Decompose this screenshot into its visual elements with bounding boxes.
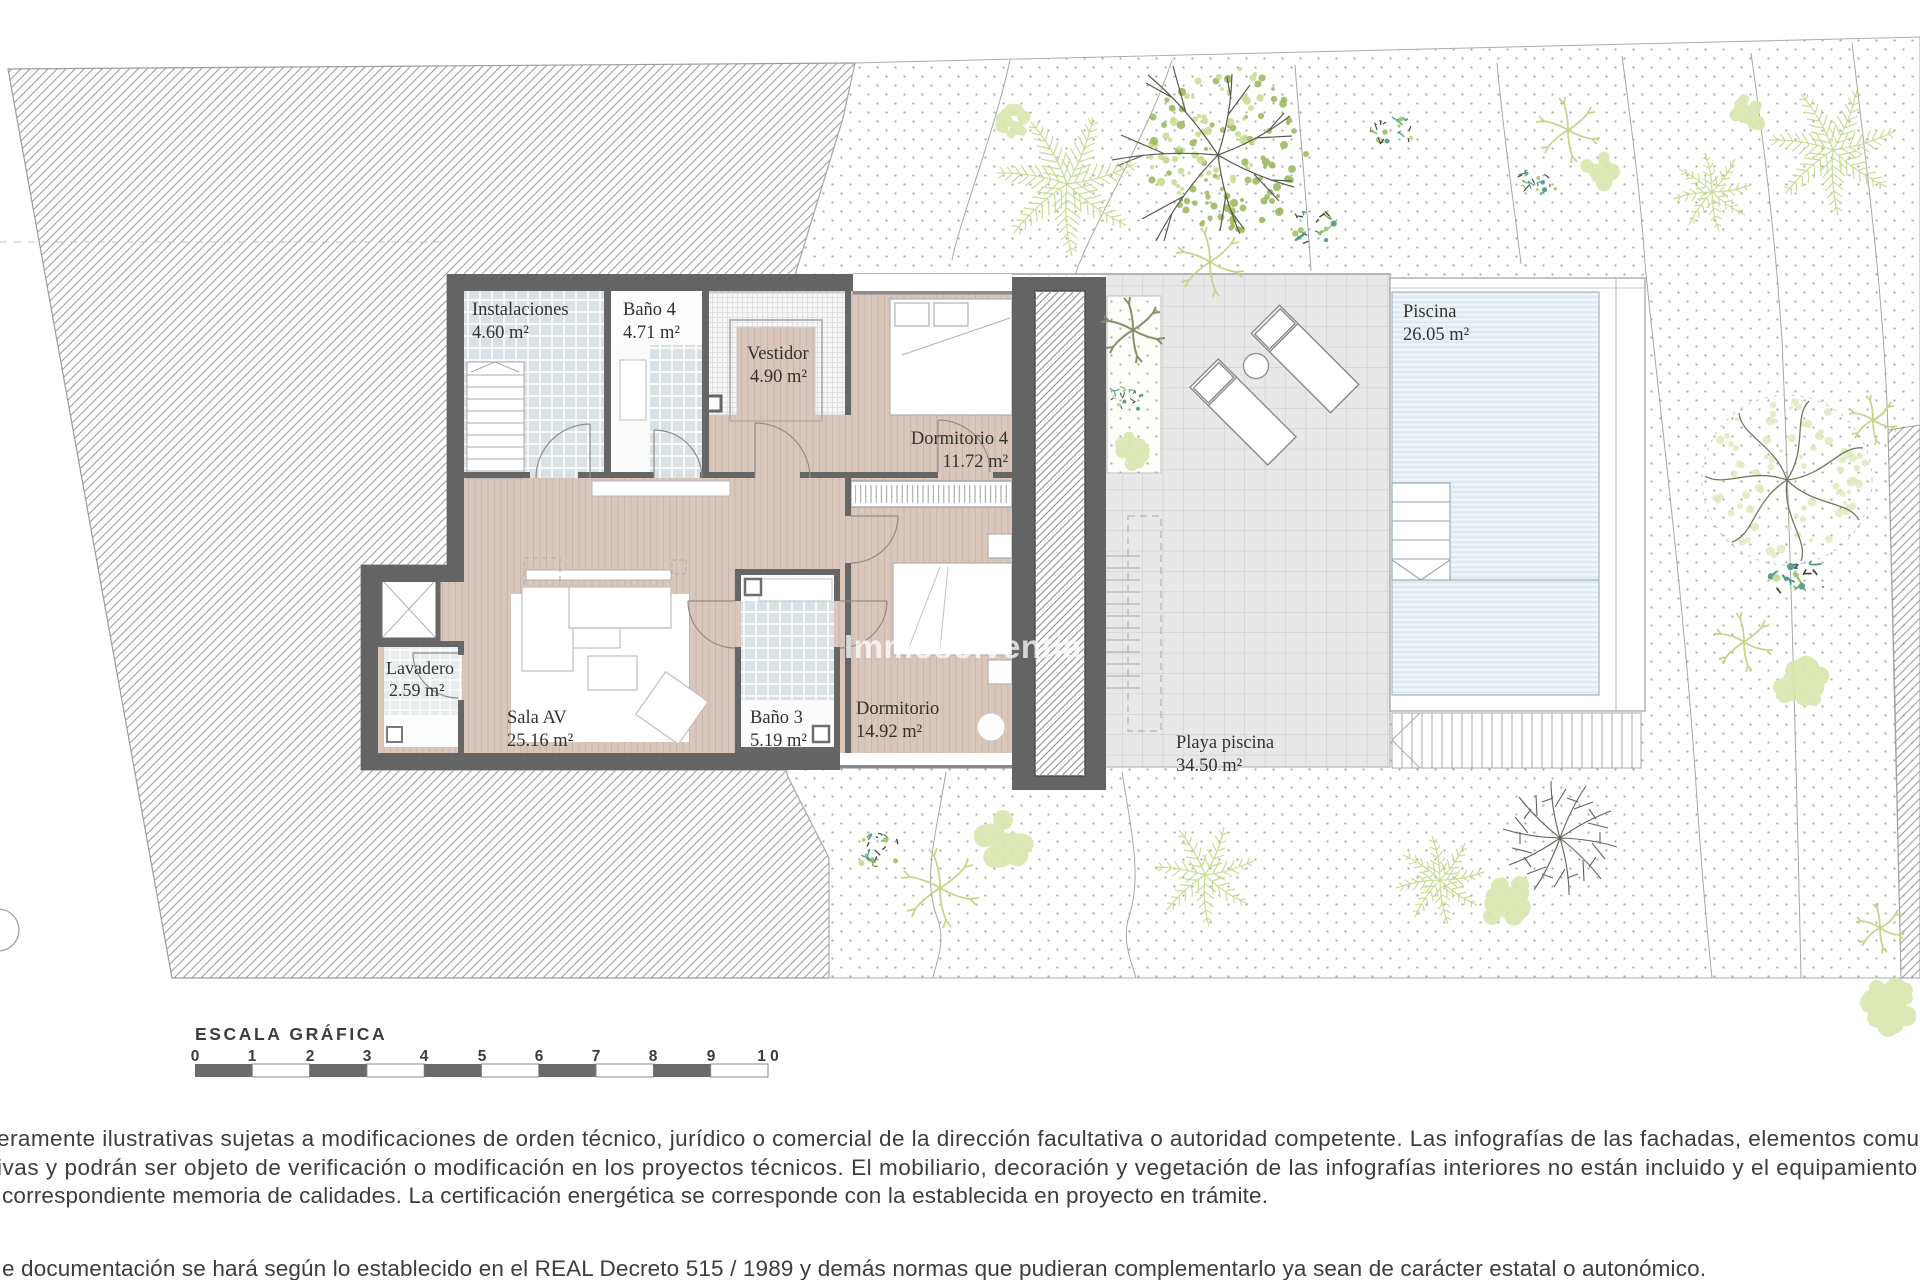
svg-text:2: 2: [306, 1048, 315, 1065]
svg-text:ESCALA GRÁFICA: ESCALA GRÁFICA: [195, 1023, 387, 1044]
svg-text:Dormitorio 4: Dormitorio 4: [911, 429, 1008, 449]
svg-text:e documentación se hará según: e documentación se hará según lo estable…: [2, 1256, 1706, 1280]
svg-text:5: 5: [478, 1048, 487, 1065]
svg-text:2.59 m²: 2.59 m²: [389, 680, 444, 700]
svg-text:Instalaciones: Instalaciones: [472, 300, 569, 320]
svg-text:1 0: 1 0: [757, 1048, 779, 1065]
svg-text:9: 9: [707, 1048, 716, 1065]
svg-text:0: 0: [191, 1048, 200, 1065]
svg-text:4.71 m²: 4.71 m²: [623, 323, 680, 343]
svg-text:4: 4: [420, 1048, 429, 1065]
svg-text:Vestidor: Vestidor: [747, 344, 809, 364]
svg-text:1: 1: [248, 1048, 257, 1065]
svg-text:5.19 m²: 5.19 m²: [750, 731, 807, 751]
svg-text:7: 7: [592, 1048, 601, 1065]
svg-text:Playa piscina: Playa piscina: [1176, 733, 1274, 753]
svg-text:correspondiente memoria de cal: correspondiente memoria de calidades. La…: [2, 1183, 1268, 1208]
svg-text:8: 8: [649, 1048, 658, 1065]
svg-text:3: 3: [363, 1048, 372, 1065]
svg-text:Baño 3: Baño 3: [750, 708, 803, 728]
svg-text:Immosolventia: Immosolventia: [844, 628, 1082, 665]
svg-text:4.90 m²: 4.90 m²: [750, 367, 807, 387]
svg-text:14.92 m²: 14.92 m²: [856, 722, 923, 742]
svg-text:11.72 m²: 11.72 m²: [943, 452, 1009, 472]
svg-text:ivas y podrán ser objeto de ve: ivas y podrán ser objeto de verificación…: [0, 1155, 1920, 1180]
svg-text:Piscina: Piscina: [1403, 302, 1456, 322]
svg-text:26.05 m²: 26.05 m²: [1403, 325, 1470, 345]
svg-text:Dormitorio: Dormitorio: [856, 699, 939, 719]
svg-text:4.60 m²: 4.60 m²: [472, 323, 529, 343]
svg-text:Baño 4: Baño 4: [623, 300, 676, 320]
svg-text:eramente ilustrativas sujetas: eramente ilustrativas sujetas a modifica…: [0, 1126, 1920, 1151]
svg-text:Lavadero: Lavadero: [386, 658, 454, 678]
svg-text:25.16 m²: 25.16 m²: [507, 731, 574, 751]
svg-text:Sala AV: Sala AV: [507, 708, 567, 728]
svg-text:34.50 m²: 34.50 m²: [1176, 756, 1243, 776]
svg-text:6: 6: [535, 1048, 544, 1065]
